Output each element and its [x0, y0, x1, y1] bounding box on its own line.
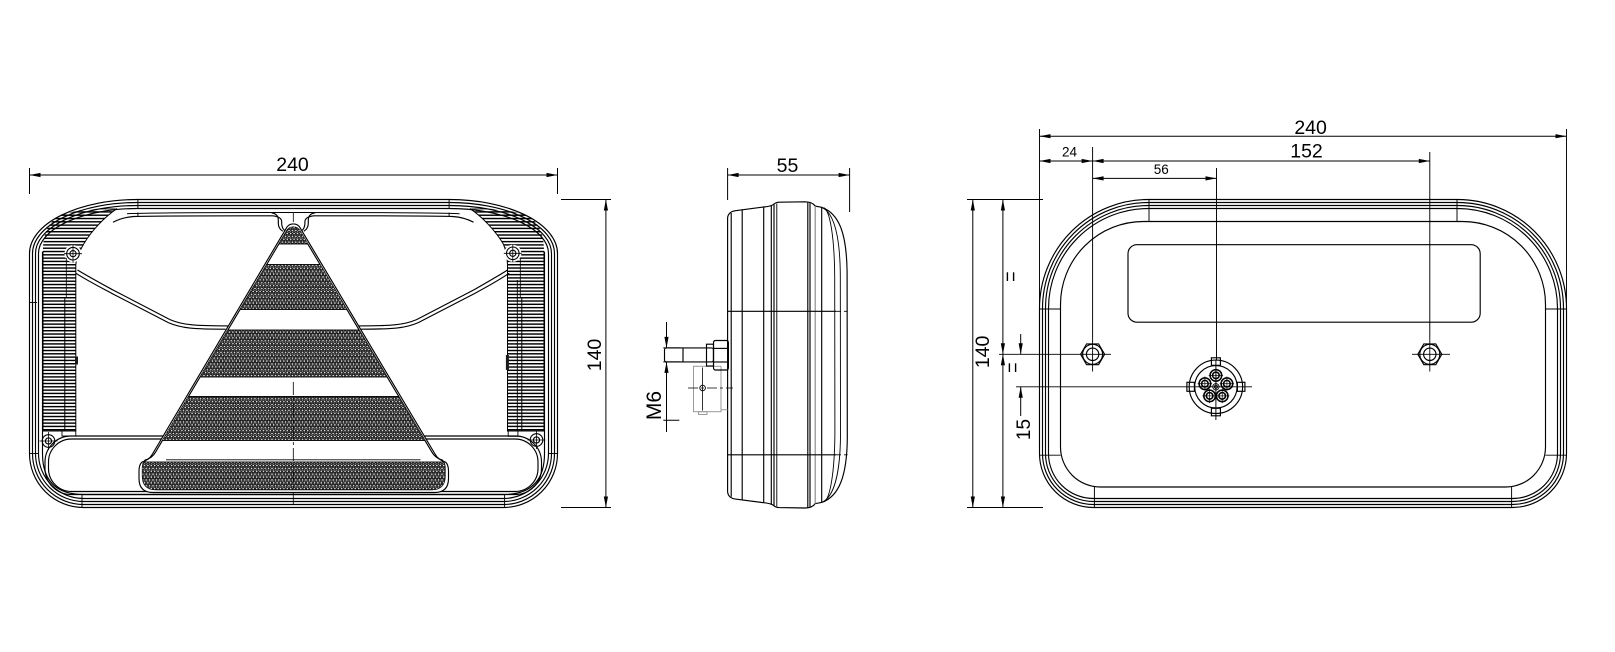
- svg-text:240: 240: [1294, 117, 1327, 139]
- svg-text:240: 240: [276, 154, 309, 176]
- svg-text:24: 24: [1062, 145, 1078, 160]
- svg-text:15: 15: [1014, 419, 1035, 440]
- svg-text:55: 55: [777, 155, 799, 177]
- svg-text:56: 56: [1154, 162, 1169, 177]
- svg-text:M6: M6: [643, 391, 666, 420]
- svg-text:152: 152: [1290, 141, 1323, 163]
- svg-text:140: 140: [584, 339, 606, 372]
- svg-text:140: 140: [972, 335, 994, 368]
